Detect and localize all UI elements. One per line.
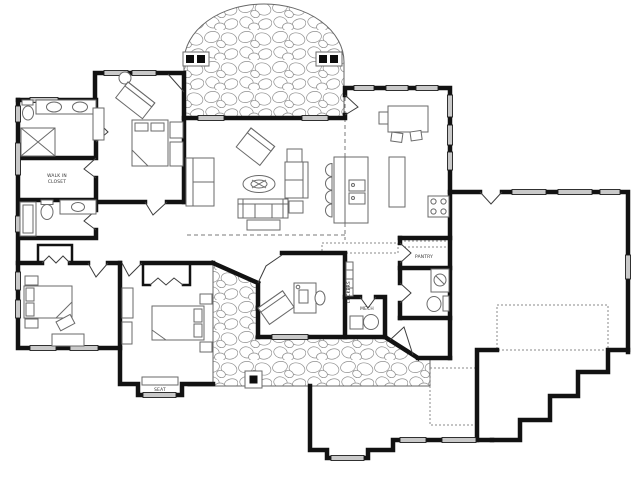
bedroom3-closet-bifold <box>150 278 183 285</box>
window <box>16 272 21 290</box>
walkway-post-icon <box>250 376 258 384</box>
shower <box>20 202 36 236</box>
bedroom2-closet-bifold <box>42 256 70 263</box>
window <box>302 116 328 121</box>
nightstand <box>170 122 183 138</box>
garage-storage-dashed <box>497 305 608 350</box>
dining-furniture <box>379 106 428 142</box>
walk-in-closet-label: WALK IN <box>47 173 67 179</box>
mech-label: MECH <box>360 306 374 312</box>
master-bath-fixtures <box>21 100 96 156</box>
kitchen-fixtures <box>326 157 450 223</box>
window <box>386 86 408 91</box>
window <box>416 86 438 91</box>
wall-segment <box>450 192 628 352</box>
windows <box>16 71 631 461</box>
window <box>354 86 374 91</box>
sofa <box>238 199 288 218</box>
toilet-icon <box>427 297 441 312</box>
window <box>448 125 453 145</box>
round-table <box>119 72 131 84</box>
window <box>448 152 453 170</box>
toilet-icon <box>23 106 34 120</box>
seat-label: SEAT <box>154 387 166 393</box>
ottoman <box>247 220 280 230</box>
pantry-shelf-dashed <box>404 241 446 247</box>
window <box>400 438 426 443</box>
den-door <box>258 255 282 283</box>
bedroom2-furniture <box>24 276 84 346</box>
master-bedroom-furniture <box>93 72 183 166</box>
dining-patio-door <box>345 95 358 115</box>
toilet-tank <box>443 296 449 311</box>
dining-chair <box>391 132 403 142</box>
post-icon <box>330 55 338 63</box>
window <box>626 255 631 279</box>
nightstand <box>25 276 38 285</box>
side-table <box>289 201 303 213</box>
bedroom3-furniture <box>122 288 212 385</box>
dining-chair <box>410 130 422 140</box>
desk <box>294 283 316 313</box>
window <box>198 116 224 121</box>
great-room-furniture <box>186 128 308 230</box>
front-stone-walkway <box>188 263 430 386</box>
den-furniture <box>258 283 325 324</box>
desk-chair <box>315 291 325 305</box>
dresser <box>52 334 84 346</box>
dresser <box>93 108 104 140</box>
window <box>442 438 476 443</box>
window <box>16 106 21 122</box>
bed <box>152 306 204 340</box>
window <box>16 143 21 175</box>
water-heater <box>364 315 379 330</box>
pantry-door <box>400 243 411 263</box>
dining-chair <box>379 112 388 124</box>
bedroom3-closet-walls <box>143 263 190 285</box>
master-patio-door <box>168 74 184 92</box>
dresser <box>122 288 133 318</box>
window <box>132 71 156 76</box>
walls <box>18 73 628 458</box>
dresser <box>122 322 132 344</box>
closet-door <box>84 158 96 178</box>
window <box>143 393 176 398</box>
window <box>558 190 592 195</box>
window <box>512 190 546 195</box>
window <box>448 95 453 117</box>
dresser <box>170 142 183 166</box>
bedroom2-door <box>88 263 108 277</box>
bedroom3-door <box>122 263 142 276</box>
nightstand <box>25 319 38 328</box>
armchair <box>236 128 274 165</box>
range <box>428 196 449 217</box>
toilet-tank <box>22 100 33 105</box>
bath-door <box>400 283 411 303</box>
side-table <box>287 149 302 162</box>
master-bedroom-door <box>145 202 167 215</box>
window-seat-bench <box>142 377 178 385</box>
wall-segment <box>310 386 492 458</box>
window <box>600 190 620 195</box>
window <box>16 300 21 318</box>
counter <box>389 157 405 207</box>
post-icon <box>197 55 205 63</box>
dining-table <box>388 106 428 132</box>
bar-stool <box>326 164 333 177</box>
lockers-label: LOCKERS <box>346 281 352 303</box>
toilet-tank <box>41 200 53 205</box>
entry-closet-dashed <box>430 368 477 425</box>
kitchen-island <box>334 157 368 223</box>
furnace <box>350 316 363 329</box>
garage-entry-door <box>480 192 502 204</box>
walk-in-closet-label-2: CLOSET <box>48 179 66 185</box>
floor-plan-image: WALK IN CLOSET PANTRY LOCKERS MECH SEAT <box>0 0 640 480</box>
post-icon <box>186 55 194 63</box>
pantry-label: PANTRY <box>415 254 433 260</box>
toilet-icon <box>41 205 53 220</box>
bath2-fixtures <box>427 269 449 312</box>
master-bed <box>132 120 168 166</box>
window <box>331 456 364 461</box>
wall-segment <box>477 350 497 440</box>
bar-stool <box>326 191 333 204</box>
bed <box>24 286 72 318</box>
bar-stool <box>326 204 333 217</box>
nightstand <box>200 342 212 352</box>
hall-bath-fixtures <box>20 200 96 236</box>
floor-plan-svg: WALK IN CLOSET PANTRY LOCKERS MECH SEAT <box>0 0 640 480</box>
window <box>272 335 308 340</box>
garage-step-wall <box>492 350 628 440</box>
post-icon <box>319 55 327 63</box>
bar-stool <box>326 177 333 190</box>
nightstand <box>200 294 212 304</box>
